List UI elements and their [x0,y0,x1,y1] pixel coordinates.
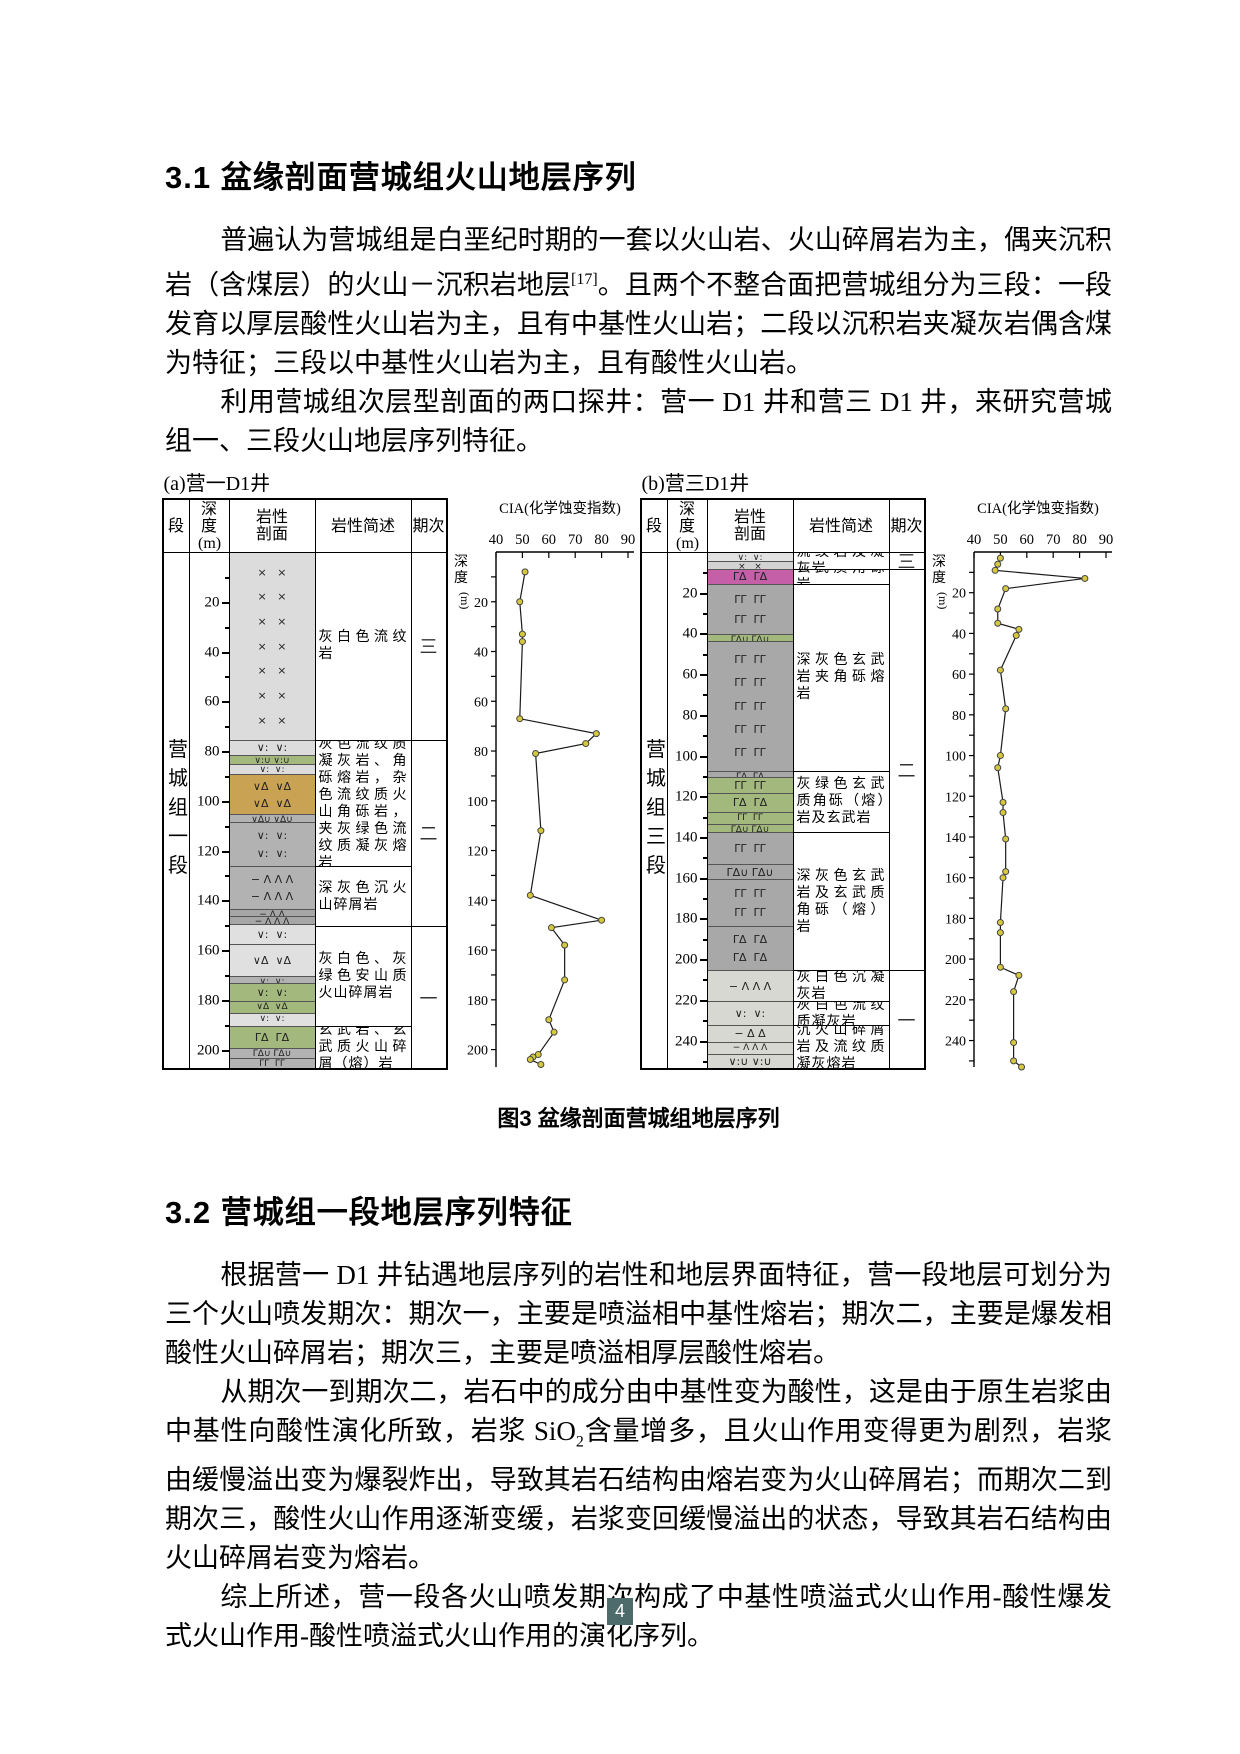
depth-tick [700,715,707,717]
cia-data-point [548,925,554,931]
depth-tick [700,796,707,798]
cia-data-point [551,1029,557,1035]
depth-label: 160 [675,870,698,887]
lithology-description-text: 沉火山碎屑岩及流纹质凝灰熔岩 [797,1025,886,1068]
lithology-unit: ΓΔ∪ ΓΔ∪ [708,824,793,832]
column-header: 岩性简述 [794,500,890,552]
lithology-unit: ∨: ∨: [230,983,315,1000]
depth-tick [700,918,707,920]
column-header-label: 段 [168,518,184,535]
stage-cell: 二 [890,569,924,970]
cia-tick-label: 40 [488,532,503,548]
paragraph-2: 利用营城组次层型剖面的两口探井：营一 D1 井和营三 D1 井，来研究营城组一、… [165,383,1112,461]
depth-tick-label: 40 [474,646,488,661]
depth-label: 140 [197,893,220,910]
lithology-symbol: × × [738,562,762,569]
column-header: 段 [164,500,190,552]
page-content: 3.1 盆缘剖面营城组火山地层序列 普遍认为营城组是白垩纪时期的一套以火山岩、火… [0,0,1240,1656]
depth-tick-label: 100 [467,795,488,810]
lithology-symbol: × × [258,690,287,701]
lithology-symbol: ∨Δ ∨Δ [253,781,291,792]
cia-data-point [994,620,1000,626]
cia-data-point [561,942,567,948]
depth-tick [222,652,229,654]
lithology-unit: × × [708,561,793,569]
cia-data-point [582,741,588,747]
lithology-symbol: ΓΓ ΓΓ [734,654,766,665]
depth-tick-label: 80 [474,745,488,760]
lithology-description-text: 灰色流纹质凝灰岩、角砾熔岩，杂色流纹质火山角砾岩，夹灰绿色流纹质凝灰熔岩 [319,740,408,867]
depth-tick [700,756,707,758]
depth-tick-label: 20 [952,587,966,602]
depth-label: 120 [197,843,220,860]
figure-panels: (a)营一D1井 段深度(m)岩性剖面岩性简述期次营城组一段2040608010… [165,467,1112,1083]
cia-data-point [1002,706,1008,712]
lithology-unit: − Λ Λ Λ [708,970,793,1001]
lithology-description-text: 灰白色流纹质凝灰岩 [797,1001,886,1025]
lithology-description: 灰色流纹质凝灰岩、角砾熔岩，杂色流纹质火山角砾岩，夹灰绿色流纹质凝灰熔岩 [316,740,411,867]
cia-tick-label: 80 [1072,532,1087,548]
lithology-symbol: ∨: ∨: [257,830,288,841]
depth-tick-label: 40 [952,627,966,642]
lithology-unit: ∨: ∨: [230,764,315,774]
depth-axis-label: 深 [932,554,946,570]
cia-data-point [1002,836,1008,842]
lithology-unit: ∨Δ ∨Δ∨Δ ∨Δ [230,774,315,814]
cia-data-point [561,977,567,983]
cia-data-point [545,1017,551,1023]
cia-tick-label: 90 [620,532,635,548]
depth-tick [703,979,707,981]
lithology-symbol: ΓΔ∪ ΓΔ∪ [253,1049,291,1058]
strat-column: 20406080100120140160180200 [190,553,230,1068]
lithology-symbol: ΓΔ ΓΔ [733,934,767,945]
depth-label: 140 [675,829,698,846]
cia-data-point [1000,810,1006,816]
lithology-symbol: ∨: ∨: [257,987,288,998]
cia-data-point [516,716,522,722]
cia-data-point [519,631,525,637]
depth-axis-label: 度 [932,570,946,586]
member-label: 营城组一段 [162,738,191,883]
stage-label: 一 [420,985,438,1011]
lithology-symbol: ΓΔ∪ ΓΔ∪ [731,825,769,832]
cia-data-point [997,964,1003,970]
depth-tick [222,602,229,604]
depth-label: 220 [675,992,698,1009]
lithology-symbol: × × [258,591,287,602]
stage-cell: 一 [890,970,924,1068]
lithology-symbol: ∨: ∨: [257,742,288,753]
figure-3: (a)营一D1井 段深度(m)岩性剖面岩性简述期次营城组一段2040608010… [165,467,1112,1133]
panel-a: (a)营一D1井 段深度(m)岩性剖面岩性简述期次营城组一段2040608010… [162,467,638,1083]
cia-data-point [527,1057,533,1063]
depth-tick-label: 160 [945,872,966,887]
lithology-description-text: 玄武质角砾岩 [797,569,886,583]
cia-data-point [522,569,528,575]
lithology-symbol: ∨: ∨: [260,1014,285,1025]
depth-axis-label: 深 [454,554,468,570]
page-number: 4 [607,1598,633,1625]
lithology-description: 深灰色沉火山碎屑岩 [316,866,411,926]
depth-tick-label: 60 [952,668,966,683]
depth-tick [700,1000,707,1002]
cia-tick-label: 70 [1045,532,1060,548]
depth-label: 40 [683,626,698,643]
lithology-symbol: × × [258,641,287,652]
lithology-unit: ∨: ∨: [230,740,315,755]
lithology-unit: ΓΓ ΓΓΓΓ ΓΓ [708,584,793,635]
cia-tick-label: 50 [515,532,530,548]
depth-tick [703,1061,707,1063]
cia-data-point [997,930,1003,936]
depth-label: 80 [205,744,220,761]
lithology-unit: ΓΔ ΓΔ [230,1026,315,1048]
cia-chart-a: CIA(化学蚀变指数)40506070809020406080100120140… [448,498,638,1083]
strat-column: 三二一 [412,553,446,1068]
lithology-description-text: 灰白色沉凝灰岩 [797,970,886,1001]
lithology-unit: − Λ Λ Λ [708,1042,793,1054]
column-header-label: 岩性剖面 [730,509,770,543]
lithology-symbol: ∨: ∨: [257,929,288,940]
cia-data-point [1010,989,1016,995]
depth-tick [222,950,229,952]
lithology-symbol: ∨Δ ∨Δ [253,798,291,809]
lithology-symbol: ΓΓ ΓΓ [734,843,766,854]
column-header: 岩性剖面 [230,500,316,552]
lithology-description: 沉火山碎屑岩及流纹质凝灰熔岩 [794,1025,889,1068]
cia-tick-label: 50 [993,532,1008,548]
lithology-description: 流纹岩及凝灰岩 [794,553,889,569]
depth-tick [225,776,229,778]
strat-column: ∨: ∨:× ×ΓΔ ΓΔΓΓ ΓΓΓΓ ΓΓΓΔ∪ ΓΔ∪ΓΓ ΓΓΓΓ ΓΓ… [708,553,794,1068]
cia-data-point [537,828,543,834]
lithology-unit: ∨Δ∪ ∨Δ∪ [230,814,315,821]
lithology-symbol: ΓΔ ΓΔ [733,571,767,582]
paragraph-3: 根据营一 D1 井钻遇地层序列的岩性和地层界面特征，营一段地层可划分为三个火山喷… [165,1256,1112,1373]
strat-column: 20406080100120140160180200220240 [668,553,708,1068]
depth-tick [700,593,707,595]
stage-cell: 二 [412,740,446,927]
lithology-unit: − Λ Λ Λ− Λ Λ Λ [230,866,315,908]
lithology-description-text: 灰绿色玄武质角砾（熔）岩及玄武岩 [797,776,886,827]
lithology-description-text: 深灰色玄武岩夹角砾熔岩 [797,652,886,703]
lithology-symbol: ΓΓ ΓΓ [734,724,766,735]
chart-title: CIA(化学蚀变指数) [499,500,621,517]
depth-tick [700,674,707,676]
cia-data-point [1000,875,1006,881]
lithology-symbol: ΓΓ ΓΓ [734,701,766,712]
lithology-symbol: − Λ Λ Λ [729,981,771,992]
depth-label: 80 [683,707,698,724]
column-header-label: 岩性简述 [809,518,873,535]
cia-tick-label: 90 [1098,532,1113,548]
lithology-symbol: × × [258,715,287,726]
depth-tick [703,1020,707,1022]
lithology-symbol: ΓΔ ΓΔ [733,797,767,808]
cia-data-point [1002,586,1008,592]
cia-data-point [994,765,1000,771]
lithology-unit: ∨: ∨: [230,1013,315,1025]
strat-column: 流纹岩及凝灰岩玄武质角砾岩深灰色玄武岩夹角砾熔岩灰绿色玄武质角砾（熔）岩及玄武岩… [794,553,890,1068]
depth-tick-label: 140 [467,894,488,909]
depth-tick [222,1000,229,1002]
column-header-label: 期次 [412,518,444,535]
panel-a-label: (a)营一D1井 [164,467,638,496]
lithology-unit: ΓΓ ΓΓ [708,812,793,824]
cia-data-point [994,561,1000,567]
cia-data-point [532,751,538,757]
lithology-description: 灰绿色玄武质角砾（熔）岩及玄武岩 [794,771,889,832]
cia-data-point [519,639,525,645]
lithology-unit: ΓΔ ΓΔ [708,793,793,811]
cia-data-point [516,599,522,605]
lithology-symbol: − Λ Λ Λ [251,891,293,902]
depth-tick [703,817,707,819]
column-header-label: 期次 [890,518,922,535]
lithology-unit: − Δ Δ [708,1025,793,1041]
lithology-description: 深灰色玄武岩及玄武质角砾（熔）岩 [794,832,889,970]
depth-tick [225,975,229,977]
lithology-unit: − Δ Δ [230,909,315,916]
lithology-symbol: ΓΔ ΓΔ [255,1032,289,1043]
depth-tick [225,875,229,877]
depth-label: 240 [675,1033,698,1050]
lithology-description: 玄武岩、玄武质火山碎屑（熔）岩 [316,1026,411,1068]
column-header: 深度(m) [190,500,230,552]
cia-data-point [1015,972,1021,978]
lithology-unit: ΓΓ ΓΓΓΓ ΓΓΓΓ ΓΓΓΓ ΓΓΓΓ ΓΓ [708,641,793,771]
cia-line [995,558,1085,1067]
depth-label: 40 [205,644,220,661]
cia-data-point [992,567,998,573]
lithology-description-text: 流纹岩及凝灰岩 [797,553,886,569]
figure-caption: 图3 盆缘剖面营城组地层序列 [165,1101,1112,1133]
lithology-symbol: ∨:∪ ∨:∪ [254,756,289,765]
member-label: 营城组三段 [640,738,669,883]
lithology-symbol: × × [258,665,287,676]
lithology-description-text: 深灰色沉火山碎屑岩 [319,880,408,914]
lithology-unit: ∨:∪ ∨:∪ [708,1054,793,1068]
section-3-1-heading: 3.1 盆缘剖面营城组火山地层序列 [165,152,1112,197]
lithology-unit: ∨: ∨: [708,553,793,561]
strat-table-b: 段深度(m)岩性剖面岩性简述期次营城组三段2040608010012014016… [640,498,926,1070]
depth-tick [222,1050,229,1052]
lithology-description: 灰白色沉凝灰岩 [794,970,889,1001]
depth-tick [703,613,707,615]
cia-data-point [997,919,1003,925]
lithology-symbol: × × [258,567,287,578]
lithology-symbol: ∨: ∨: [735,1008,766,1019]
depth-tick-label: 180 [467,994,488,1009]
lithology-symbol: ∨: ∨: [257,848,288,859]
column-header: 深度(m) [668,500,708,552]
lithology-unit: ∨: ∨: [230,924,315,944]
depth-tick [222,900,229,902]
depth-tick [700,837,707,839]
lithology-unit: ∨: ∨: [708,1001,793,1025]
depth-tick-label: 80 [952,709,966,724]
lithology-description-text: 玄武岩、玄武质火山碎屑（熔）岩 [319,1026,408,1068]
sio2-subscript: 2 [576,1433,584,1450]
cia-data-point [994,606,1000,612]
depth-tick-label: 120 [467,845,488,860]
cia-data-point [1015,626,1021,632]
lithology-symbol: ΓΓ ΓΓ [734,888,766,899]
strat-column: 营城组一段 [164,553,190,1068]
stage-label: 一 [898,1007,916,1033]
depth-label: 200 [197,1042,220,1059]
panel-b-label: (b)营三D1井 [642,467,1116,496]
column-header-label: 深度(m) [676,501,698,552]
column-header: 岩性简述 [316,500,412,552]
stage-cell: 三 [412,553,446,740]
cia-data-point [997,753,1003,759]
depth-label: 60 [205,694,220,711]
column-header-label: 段 [646,518,662,535]
depth-label: 180 [675,911,698,928]
paragraph-1: 普遍认为营城组是白垩纪时期的一套以火山岩、火山碎屑岩为主，偶夹沉积岩（含煤层）的… [165,221,1112,383]
lithology-unit: ∨Δ ∨Δ [230,944,315,976]
cia-tick-label: 80 [594,532,609,548]
stage-label: 三 [420,633,438,659]
lithology-description-text: 灰白色、灰绿色安山质火山碎屑岩 [319,951,408,1002]
strat-column: 三二一 [890,553,924,1068]
depth-label: 100 [197,793,220,810]
lithology-symbol: ∨Δ ∨Δ [253,955,291,966]
depth-tick [222,701,229,703]
section-3-2-heading: 3.2 营城组一段地层序列特征 [165,1187,1112,1232]
lithology-symbol: ΓΔ∪ ΓΔ∪ [727,867,774,878]
column-header-label: 岩性剖面 [252,509,292,543]
lithology-symbol: ΓΓ ΓΓ [737,813,763,824]
cia-data-point [1013,632,1019,638]
column-header: 岩性剖面 [708,500,794,552]
lithology-symbol: ΓΓ ΓΓ [259,1059,285,1068]
lithology-unit: ΓΔ∪ ΓΔ∪ [230,1048,315,1058]
cia-data-point [1081,575,1087,581]
depth-tick-label: 120 [945,790,966,805]
column-header: 段 [642,500,668,552]
lithology-unit: ΓΓ ΓΓΓΓ ΓΓ [708,879,793,926]
depth-tick [703,572,707,574]
cia-tick-label: 60 [1019,532,1034,548]
depth-axis-label: 度 [454,570,468,586]
depth-tick [700,633,707,635]
depth-tick [225,925,229,927]
lithology-symbol: ΓΓ ΓΓ [734,594,766,605]
lithology-symbol: ΓΔ ΓΔ [733,952,767,963]
panel-b: (b)营三D1井 段深度(m)岩性剖面岩性简述期次营城组三段2040608010… [640,467,1116,1083]
cia-data-point [527,892,533,898]
cia-data-point [1018,1064,1024,1070]
lithology-unit: ΓΓ ΓΓ [708,777,793,793]
depth-tick [703,735,707,737]
depth-tick [703,898,707,900]
lithology-symbol: ΓΓ ΓΓ [734,677,766,688]
lithology-description: 灰白色、灰绿色安山质火山碎屑岩 [316,926,411,1026]
depth-axis-label: (m) [936,592,950,609]
column-header-label: 深度(m) [198,501,220,552]
depth-tick-label: 180 [945,912,966,927]
chart-title: CIA(化学蚀变指数) [977,500,1099,517]
depth-label: 100 [675,748,698,765]
cia-data-point [1002,869,1008,875]
cia-data-point [593,731,599,737]
lithology-unit: ∨: ∨: [230,976,315,983]
depth-tick [703,654,707,656]
lithology-unit: ∨:∪ ∨:∪ [230,755,315,765]
strat-body: 营城组一段20406080100120140160180200× ×× ×× ×… [162,553,448,1070]
depth-tick [700,1041,707,1043]
lithology-unit: − Λ Λ Λ [230,916,315,923]
cia-data-point [1010,1058,1016,1064]
depth-tick-label: 200 [467,1044,488,1059]
strat-column: 营城组三段 [642,553,668,1068]
lithology-symbol: × × [258,616,287,627]
stage-cell: 一 [412,926,446,1068]
strat-header-row: 段深度(m)岩性剖面岩性简述期次 [640,498,926,553]
depth-axis-label: (m) [458,592,472,609]
depth-tick [700,878,707,880]
lithology-unit: ΓΓ ΓΓ [708,832,793,865]
depth-tick [225,627,229,629]
depth-tick [225,676,229,678]
column-header: 期次 [890,500,924,552]
strat-column: × ×× ×× ×× ×× ×× ×× ×∨: ∨:∨:∪ ∨:∪∨: ∨:∨Δ… [230,553,316,1068]
depth-label: 60 [683,667,698,684]
lithology-description-text: 灰白色流纹岩 [319,629,408,663]
lithology-description: 深灰色玄武岩夹角砾熔岩 [794,584,889,771]
depth-tick-label: 160 [467,944,488,959]
lithology-symbol: ∨Δ ∨Δ [256,1002,287,1013]
lithology-symbol: ∨: ∨: [738,553,763,561]
cia-tick-label: 70 [567,532,582,548]
depth-tick-label: 240 [945,1035,966,1050]
cia-tick-label: 40 [966,532,981,548]
depth-label: 120 [675,789,698,806]
depth-tick [222,751,229,753]
lithology-symbol: − Δ Δ [734,1028,765,1039]
lithology-symbol: − Λ Λ Λ [251,874,293,885]
cia-chart-b: CIA(化学蚀变指数)40506070809020406080100120140… [926,498,1116,1083]
cia-line [519,572,601,1065]
depth-tick [225,726,229,728]
depth-tick [703,939,707,941]
depth-label: 200 [675,952,698,969]
depth-label: 180 [197,992,220,1009]
depth-tick-label: 20 [474,596,488,611]
depth-tick [225,826,229,828]
cia-data-point [598,917,604,923]
lithology-symbol: ΓΓ ΓΓ [734,780,766,791]
lithology-unit: ∨: ∨:∨: ∨: [230,822,315,867]
lithology-symbol: ΓΓ ΓΓ [734,747,766,758]
strat-table-a: 段深度(m)岩性剖面岩性简述期次营城组一段2040608010012014016… [162,498,448,1070]
cia-data-point [1010,1040,1016,1046]
lithology-symbol: ∨: ∨: [260,765,285,774]
lithology-unit: ∨Δ ∨Δ [230,1001,315,1013]
depth-tick [225,577,229,579]
depth-tick-label: 220 [945,994,966,1009]
stage-label: 二 [420,820,438,846]
column-header: 期次 [412,500,446,552]
depth-tick [703,694,707,696]
lithology-unit: ΓΔ ΓΔ [708,569,793,583]
strat-header-row: 段深度(m)岩性剖面岩性简述期次 [162,498,448,553]
stage-cell: 三 [890,553,924,569]
strat-body: 营城组三段20406080100120140160180200220240∨: … [640,553,926,1070]
